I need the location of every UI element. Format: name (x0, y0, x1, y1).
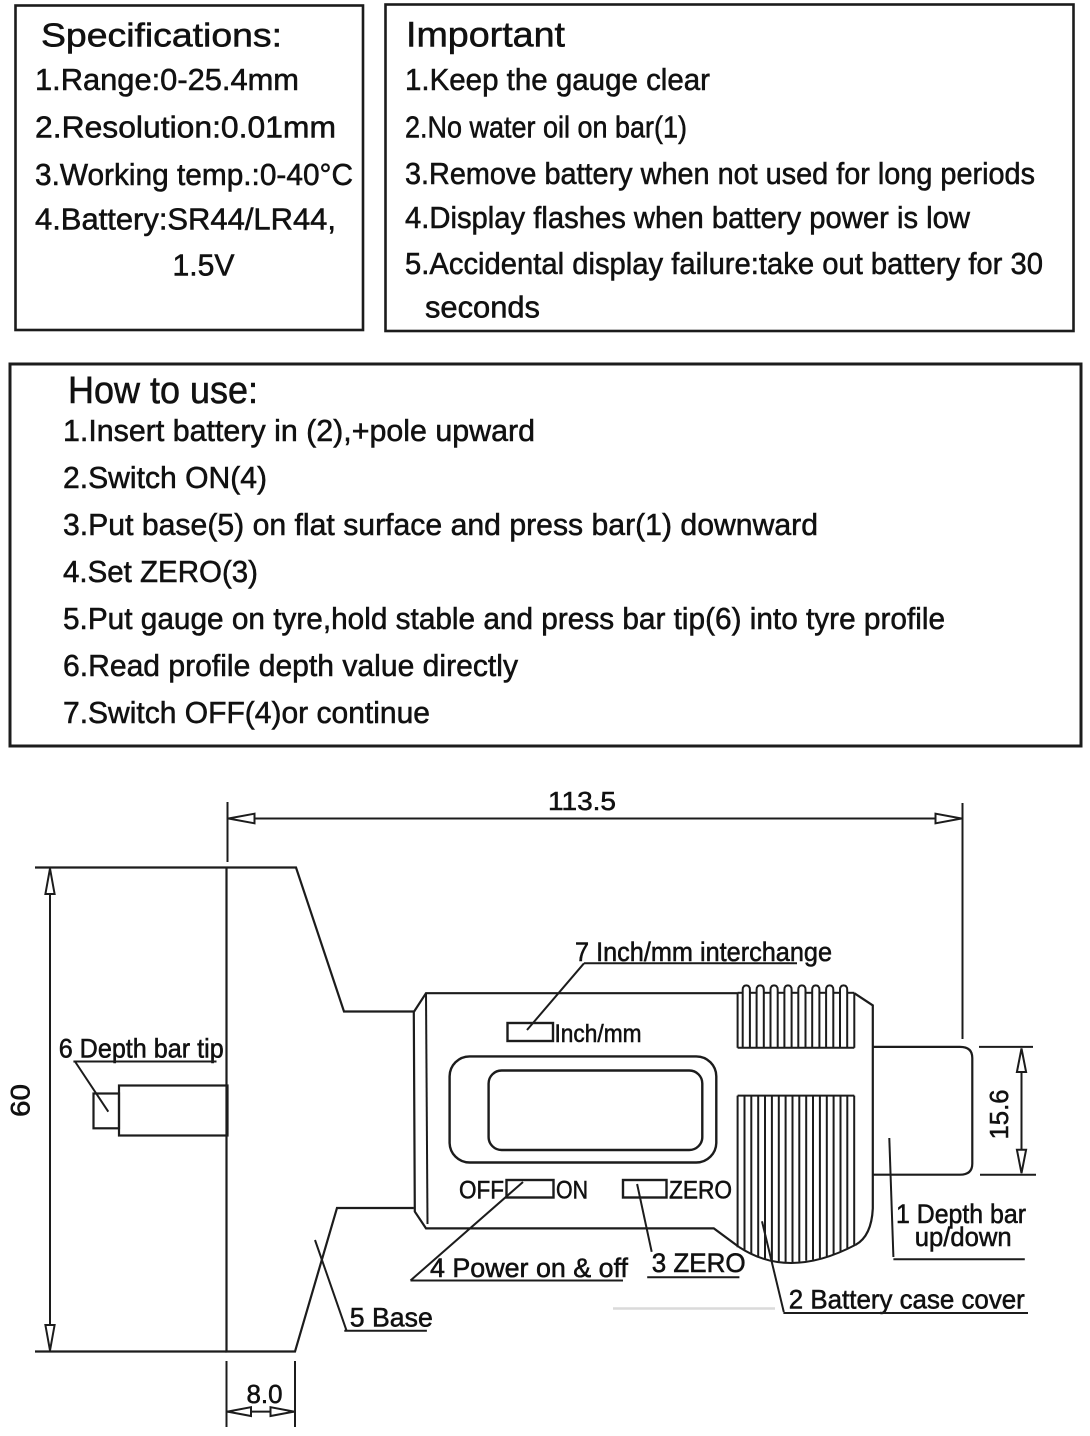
svg-text:5.Put gauge on tyre,hold stabl: 5.Put gauge on tyre,hold stable and pres… (63, 601, 945, 636)
svg-text:2.Switch ON(4): 2.Switch ON(4) (63, 460, 267, 495)
svg-text:ZERO: ZERO (669, 1176, 732, 1204)
svg-text:5 Base: 5 Base (350, 1302, 433, 1332)
svg-text:7.Switch OFF(4)or continue: 7.Switch OFF(4)or continue (63, 695, 430, 730)
svg-text:How to use:: How to use: (68, 370, 258, 412)
svg-text:1.Insert battery in (2),+pole: 1.Insert battery in (2),+pole upward (63, 413, 535, 448)
svg-text:4.Set ZERO(3): 4.Set ZERO(3) (63, 554, 258, 589)
svg-text:60: 60 (6, 1084, 36, 1117)
svg-text:1.Range:0-25.4mm: 1.Range:0-25.4mm (35, 63, 299, 97)
svg-text:5.Accidental display failure:t: 5.Accidental display failure:take out ba… (405, 247, 1043, 281)
svg-text:6.Read profile depth value dir: 6.Read profile depth value directly (63, 648, 518, 683)
svg-text:113.5: 113.5 (548, 786, 616, 816)
svg-text:Specifications:: Specifications: (41, 17, 282, 54)
svg-text:seconds: seconds (425, 291, 540, 325)
svg-text:ON: ON (556, 1176, 588, 1204)
svg-text:up/down: up/down (915, 1222, 1012, 1252)
svg-text:4 Power on & off: 4 Power on & off (430, 1253, 628, 1283)
svg-text:15.6: 15.6 (984, 1090, 1014, 1140)
svg-text:4.Battery:SR44/LR44,: 4.Battery:SR44/LR44, (35, 203, 336, 237)
svg-text:1.5V: 1.5V (173, 249, 236, 283)
svg-text:3.Remove battery when not used: 3.Remove battery when not used for long … (405, 157, 1035, 191)
svg-text:2.No water oil on bar(1): 2.No water oil on bar(1) (405, 111, 687, 145)
svg-text:Inch/mm: Inch/mm (555, 1020, 642, 1048)
svg-text:2 Battery case cover: 2 Battery case cover (789, 1285, 1025, 1315)
svg-text:Important: Important (406, 16, 565, 55)
svg-text:3.Put base(5) on flat surface: 3.Put base(5) on flat surface and press … (63, 507, 818, 542)
svg-text:1.Keep the gauge clear: 1.Keep the gauge clear (405, 63, 710, 97)
svg-text:3 ZERO: 3 ZERO (652, 1248, 746, 1278)
svg-text:3.Working temp.:0-40°C: 3.Working temp.:0-40°C (35, 158, 353, 192)
svg-text:8.0: 8.0 (247, 1379, 283, 1409)
svg-text:2.Resolution:0.01mm: 2.Resolution:0.01mm (35, 111, 336, 145)
svg-text:OFF: OFF (459, 1176, 504, 1204)
svg-text:6 Depth bar tip: 6 Depth bar tip (59, 1034, 224, 1064)
svg-text:4.Display flashes when battery: 4.Display flashes when battery power is … (405, 201, 971, 235)
